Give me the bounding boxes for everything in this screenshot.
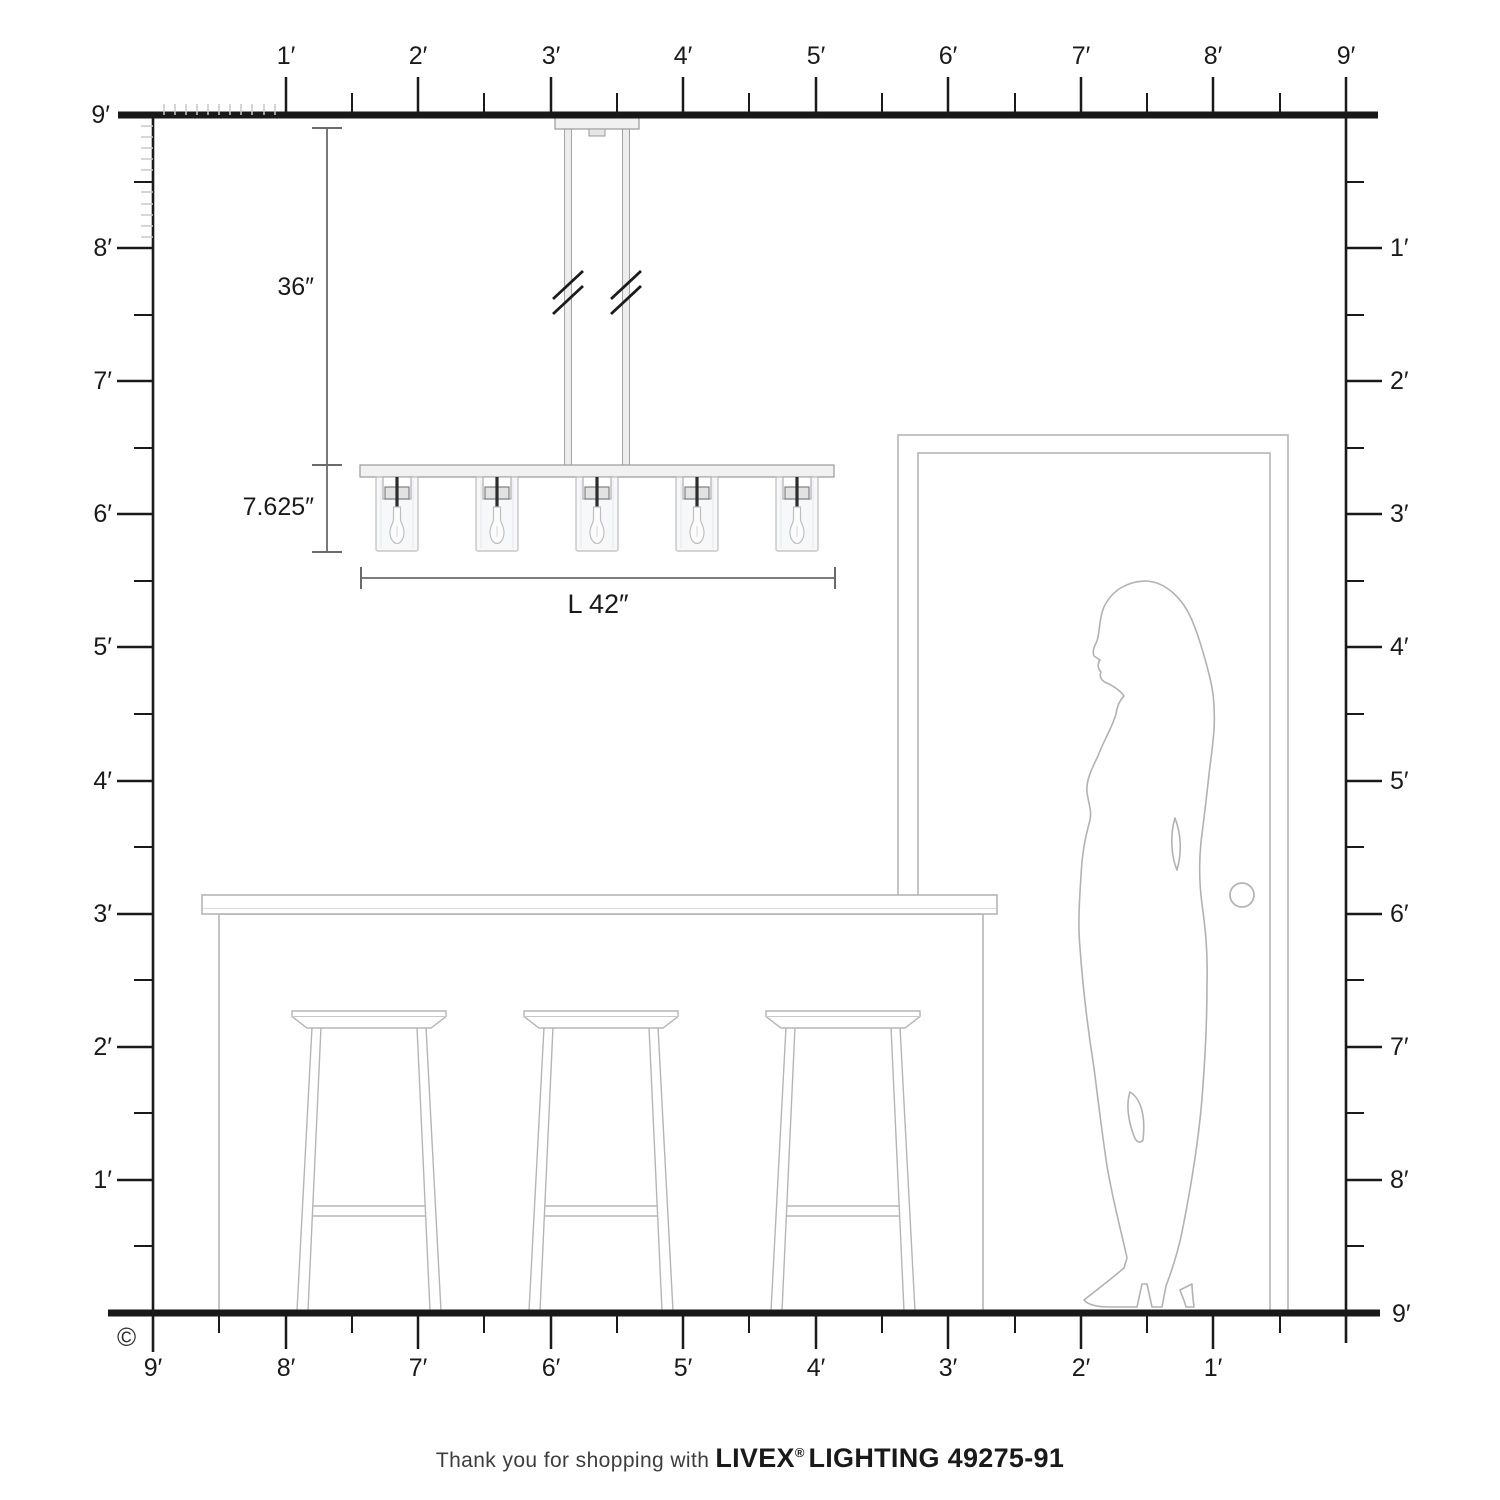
length-dimension-label: L 42″ <box>567 589 629 619</box>
down-rod-left <box>565 120 572 465</box>
glass-shade-4 <box>676 477 718 551</box>
right-label-7ft: 7′ <box>1390 1033 1409 1061</box>
footer-brand: LIVEX <box>715 1443 795 1473</box>
footer-prefix: Thank you for shopping with <box>436 1449 709 1472</box>
top-label-7ft: 7′ <box>1072 42 1091 70</box>
bottom-label-5ft: 5′ <box>674 1354 693 1382</box>
glass-shade-2 <box>476 477 518 551</box>
left-ruler-half-ticks <box>134 182 153 1246</box>
glass-shade-3 <box>576 477 618 551</box>
scale-diagram-page: 36″ 7.625″ L 42″ 1′ 2′ 3′ 4′ 5′ 6′ 7′ 8′… <box>0 0 1500 1500</box>
left-label-5ft: 5′ <box>93 633 112 661</box>
fixture-bar <box>360 465 834 477</box>
top-label-9ft: 9′ <box>1337 42 1356 70</box>
bottom-label-1ft: 1′ <box>1204 1354 1223 1382</box>
copyright-symbol: © <box>117 1322 136 1352</box>
right-ruler-labels: 1′ 2′ 3′ 4′ 5′ 6′ 7′ 8′ 9′ <box>1390 234 1411 1328</box>
bottom-label-4ft: 4′ <box>807 1354 826 1382</box>
left-label-8ft: 8′ <box>93 234 112 262</box>
right-label-4ft: 4′ <box>1390 633 1409 661</box>
scale-diagram: 36″ 7.625″ L 42″ 1′ 2′ 3′ 4′ 5′ 6′ 7′ 8′… <box>0 0 1500 1500</box>
left-label-3ft: 3′ <box>93 900 112 928</box>
island-body <box>219 914 983 1313</box>
top-label-6ft: 6′ <box>939 42 958 70</box>
right-label-5ft: 5′ <box>1390 767 1409 795</box>
top-label-2ft: 2′ <box>409 42 428 70</box>
left-label-7ft: 7′ <box>93 367 112 395</box>
left-label-4ft: 4′ <box>93 767 112 795</box>
canopy-knob <box>589 129 605 136</box>
bottom-label-8ft: 8′ <box>277 1354 296 1382</box>
right-label-1ft: 1′ <box>1390 234 1409 262</box>
top-label-4ft: 4′ <box>674 42 693 70</box>
right-label-6ft: 6′ <box>1390 900 1409 928</box>
right-ruler-half-ticks <box>1346 182 1364 1246</box>
left-label-6ft: 6′ <box>93 500 112 528</box>
top-label-3ft: 3′ <box>542 42 561 70</box>
linear-chandelier <box>360 118 834 552</box>
island-countertop <box>202 895 997 914</box>
top-label-8ft: 8′ <box>1204 42 1223 70</box>
registered-trademark-icon: ® <box>795 1445 805 1460</box>
height-dimension-label: 7.625″ <box>243 493 315 521</box>
glass-shade-1 <box>376 477 418 551</box>
footer-text: Thank you for shopping withLIVEX®LIGHTIN… <box>0 1443 1500 1474</box>
footer-product-number: LIGHTING 49275-91 <box>808 1443 1064 1473</box>
kitchen-island <box>202 895 997 1313</box>
bottom-label-3ft: 3′ <box>939 1354 958 1382</box>
left-label-2ft: 2′ <box>93 1033 112 1061</box>
bottom-label-9ft: 9′ <box>144 1354 163 1382</box>
bottom-label-7ft: 7′ <box>409 1354 428 1382</box>
left-ruler-labels: 9′ 8′ 7′ 6′ 5′ 4′ 3′ 2′ 1′ <box>91 101 112 1194</box>
bottom-label-6ft: 6′ <box>542 1354 561 1382</box>
bottom-label-2ft: 2′ <box>1072 1354 1091 1382</box>
down-rod-right <box>623 120 630 465</box>
top-ruler-major-ticks <box>286 77 1346 115</box>
right-label-3ft: 3′ <box>1390 500 1409 528</box>
drop-dimension-label: 36″ <box>277 273 314 301</box>
glass-shade-5 <box>776 477 818 551</box>
left-label-9ft: 9′ <box>91 101 110 129</box>
bottom-ruler-labels: 9′ 8′ 7′ 6′ 5′ 4′ 3′ 2′ 1′ <box>144 1354 1223 1382</box>
top-ruler-labels: 1′ 2′ 3′ 4′ 5′ 6′ 7′ 8′ 9′ <box>277 42 1356 70</box>
ceiling-canopy <box>555 118 639 130</box>
top-label-1ft: 1′ <box>277 42 296 70</box>
right-label-9ft-floor: 9′ <box>1392 1300 1411 1328</box>
top-label-5ft: 5′ <box>807 42 826 70</box>
right-label-8ft: 8′ <box>1390 1166 1409 1194</box>
right-label-2ft: 2′ <box>1390 367 1409 395</box>
left-label-1ft: 1′ <box>93 1166 112 1194</box>
